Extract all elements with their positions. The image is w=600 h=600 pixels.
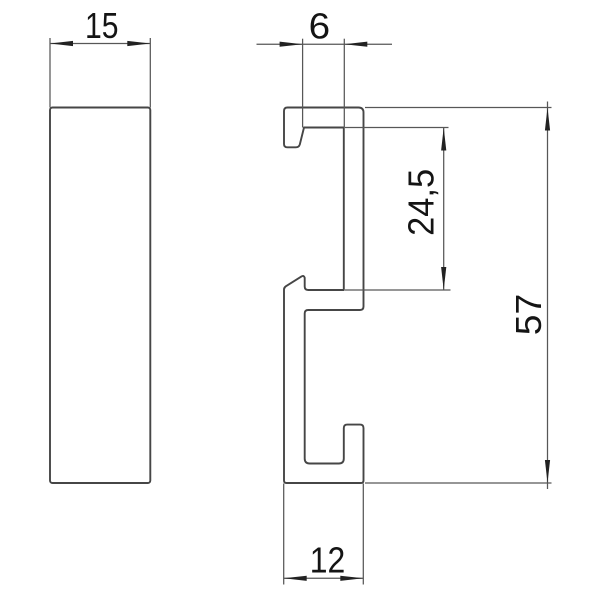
svg-text:24,5: 24,5 [401, 169, 442, 236]
svg-text:12: 12 [310, 540, 346, 581]
svg-text:6: 6 [309, 5, 331, 46]
svg-text:15: 15 [85, 5, 119, 46]
svg-text:57: 57 [508, 294, 549, 336]
